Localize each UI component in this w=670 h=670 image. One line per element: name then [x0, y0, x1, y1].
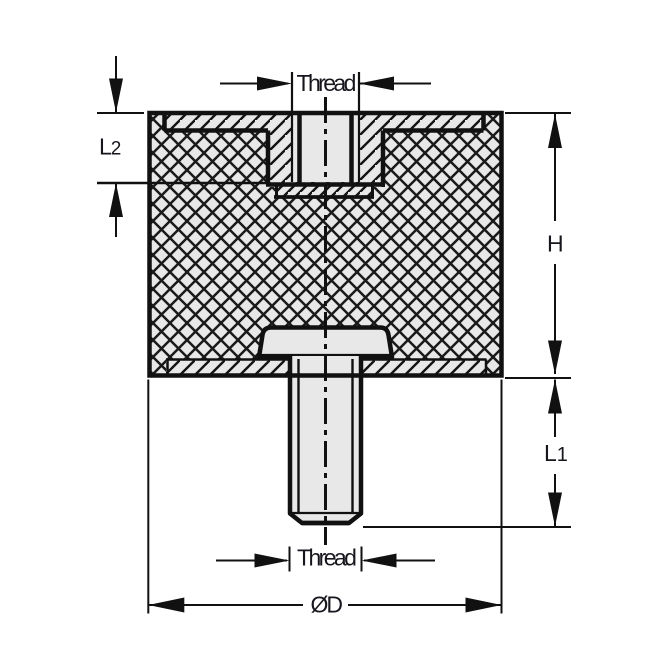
svg-text:L1: L1	[544, 440, 568, 466]
svg-text:H: H	[547, 231, 564, 257]
svg-text:ØD: ØD	[311, 592, 343, 618]
svg-text:Thread: Thread	[297, 545, 356, 571]
svg-text:Thread: Thread	[297, 70, 356, 96]
